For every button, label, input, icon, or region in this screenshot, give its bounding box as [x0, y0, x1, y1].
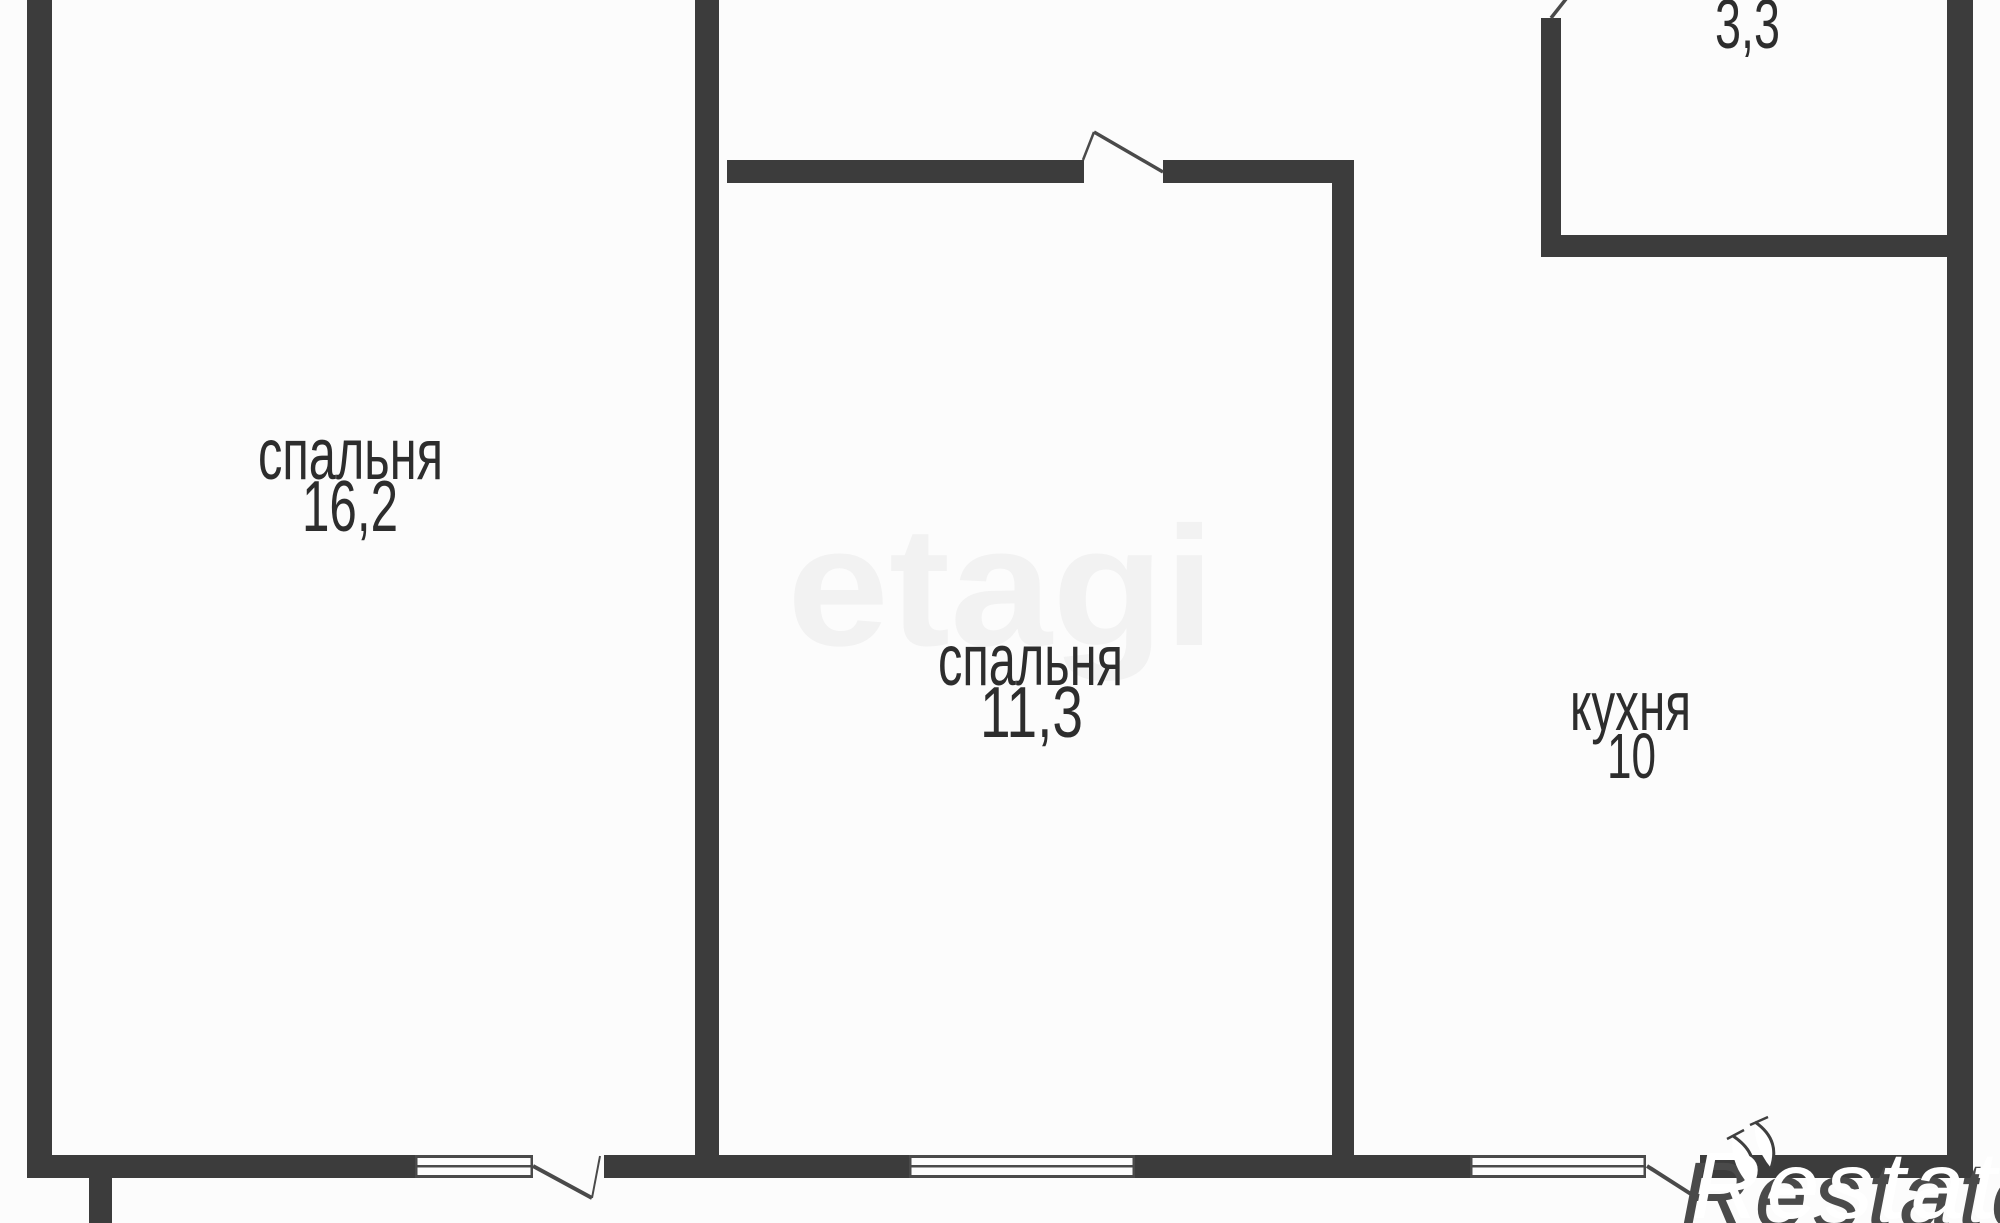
- svg-text:3,3: 3,3: [1715, 0, 1780, 63]
- svg-text:Restate: Restate: [1692, 1133, 2000, 1223]
- svg-text:11,3: 11,3: [980, 673, 1083, 753]
- svg-text:16,2: 16,2: [302, 467, 398, 547]
- svg-text:10: 10: [1607, 720, 1656, 792]
